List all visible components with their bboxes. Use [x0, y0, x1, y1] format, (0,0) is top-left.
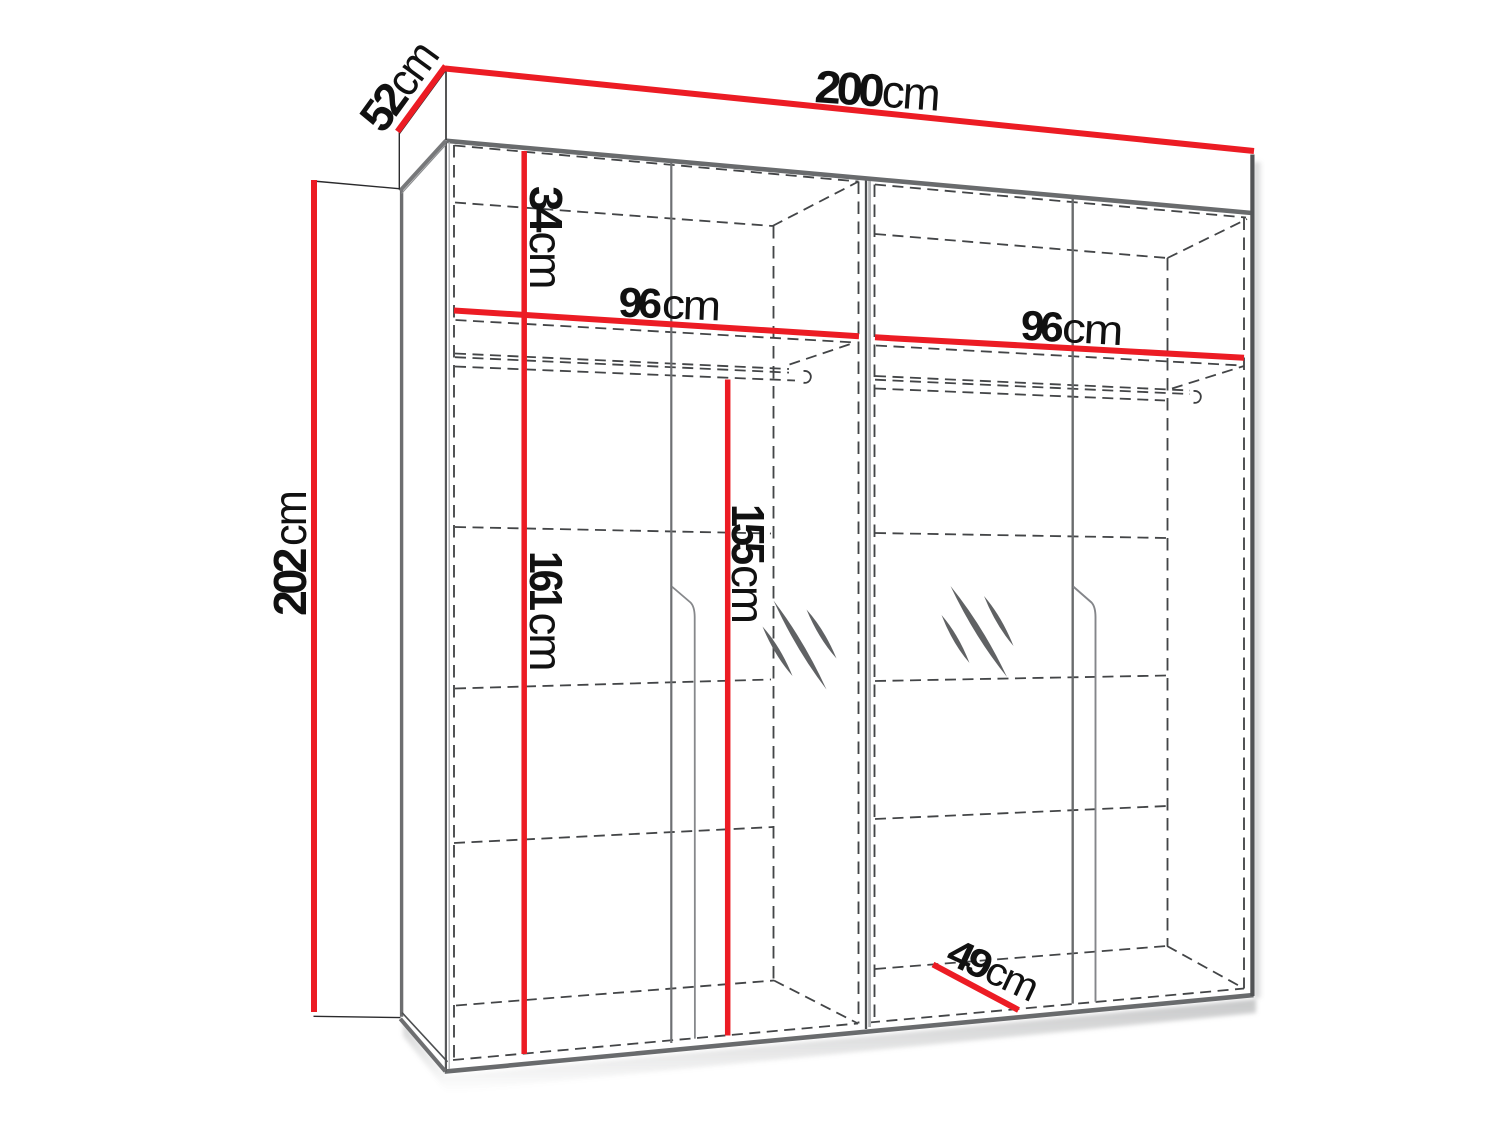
svg-text:96cm: 96cm	[618, 279, 720, 330]
svg-text:202cm: 202cm	[264, 492, 316, 616]
svg-text:96cm: 96cm	[1019, 302, 1122, 355]
svg-text:161cm: 161cm	[520, 551, 572, 670]
svg-text:200cm: 200cm	[813, 60, 940, 121]
svg-text:34cm: 34cm	[520, 186, 572, 288]
